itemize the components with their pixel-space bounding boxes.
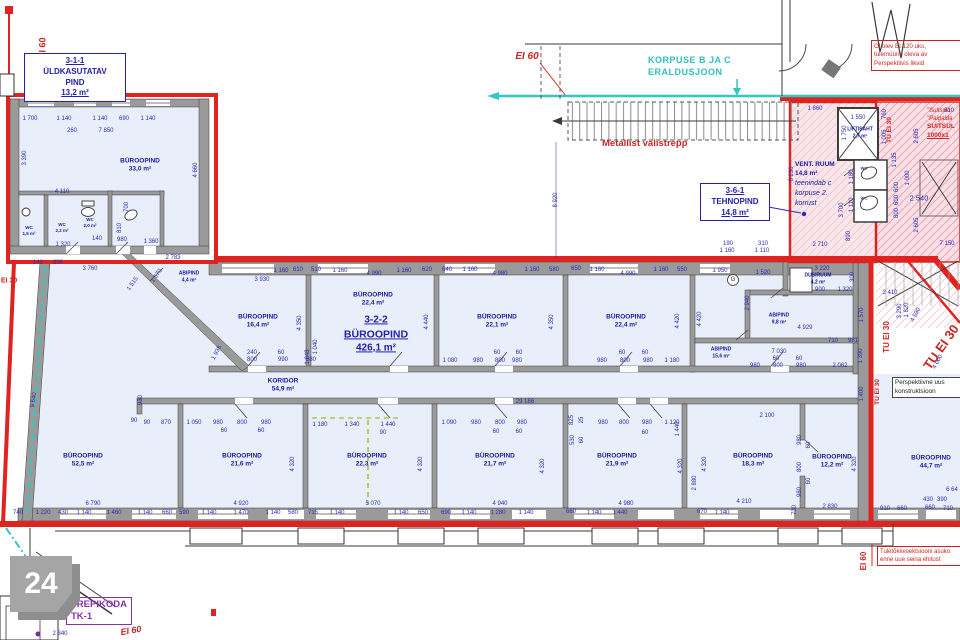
sheet-marker: 24 (10, 556, 72, 612)
floor-plan-canvas: BÜROOPIND33,0 m²WC1,5 m²WC2,2 m²WC2,0 m²… (0, 0, 960, 640)
floorplan-linework (0, 0, 960, 640)
existing-door-note: Ol olev EI 120 uks, tulemüüris oleva av … (871, 40, 960, 71)
metal-stair-note: Metallist välistrepp (602, 138, 688, 151)
zone-label-tehnopind: 3-6-1 TEHNOPIND 14,8 m² (700, 183, 770, 221)
zone-total-label: 3-2-2 BÜROOPIND 426,1 m² (344, 313, 408, 354)
vent-room-label: VENT. RUUM 14,8 m² teenindab c korpuse 2… (795, 160, 835, 209)
smoke-hatch-note: "Suitsulu "Paigalda SUITSUL 1000x1 (927, 107, 955, 141)
fire-section-note: Tuletõkkesektsiooni asuko enne uue seina… (877, 546, 960, 566)
future-construction-note: Perspektiivne uus konstruktsioon (892, 377, 960, 398)
zone-code: 3-1-1 (28, 56, 122, 67)
separation-line-note: KORPUSE B JA C ERALDUSJOON (648, 54, 731, 78)
zone-label-uldkasutatav: 3-1-1 ÜLDKASUTATAV PIND 13,2 m² (24, 53, 126, 102)
zone-area: 13,2 m² (28, 88, 122, 99)
